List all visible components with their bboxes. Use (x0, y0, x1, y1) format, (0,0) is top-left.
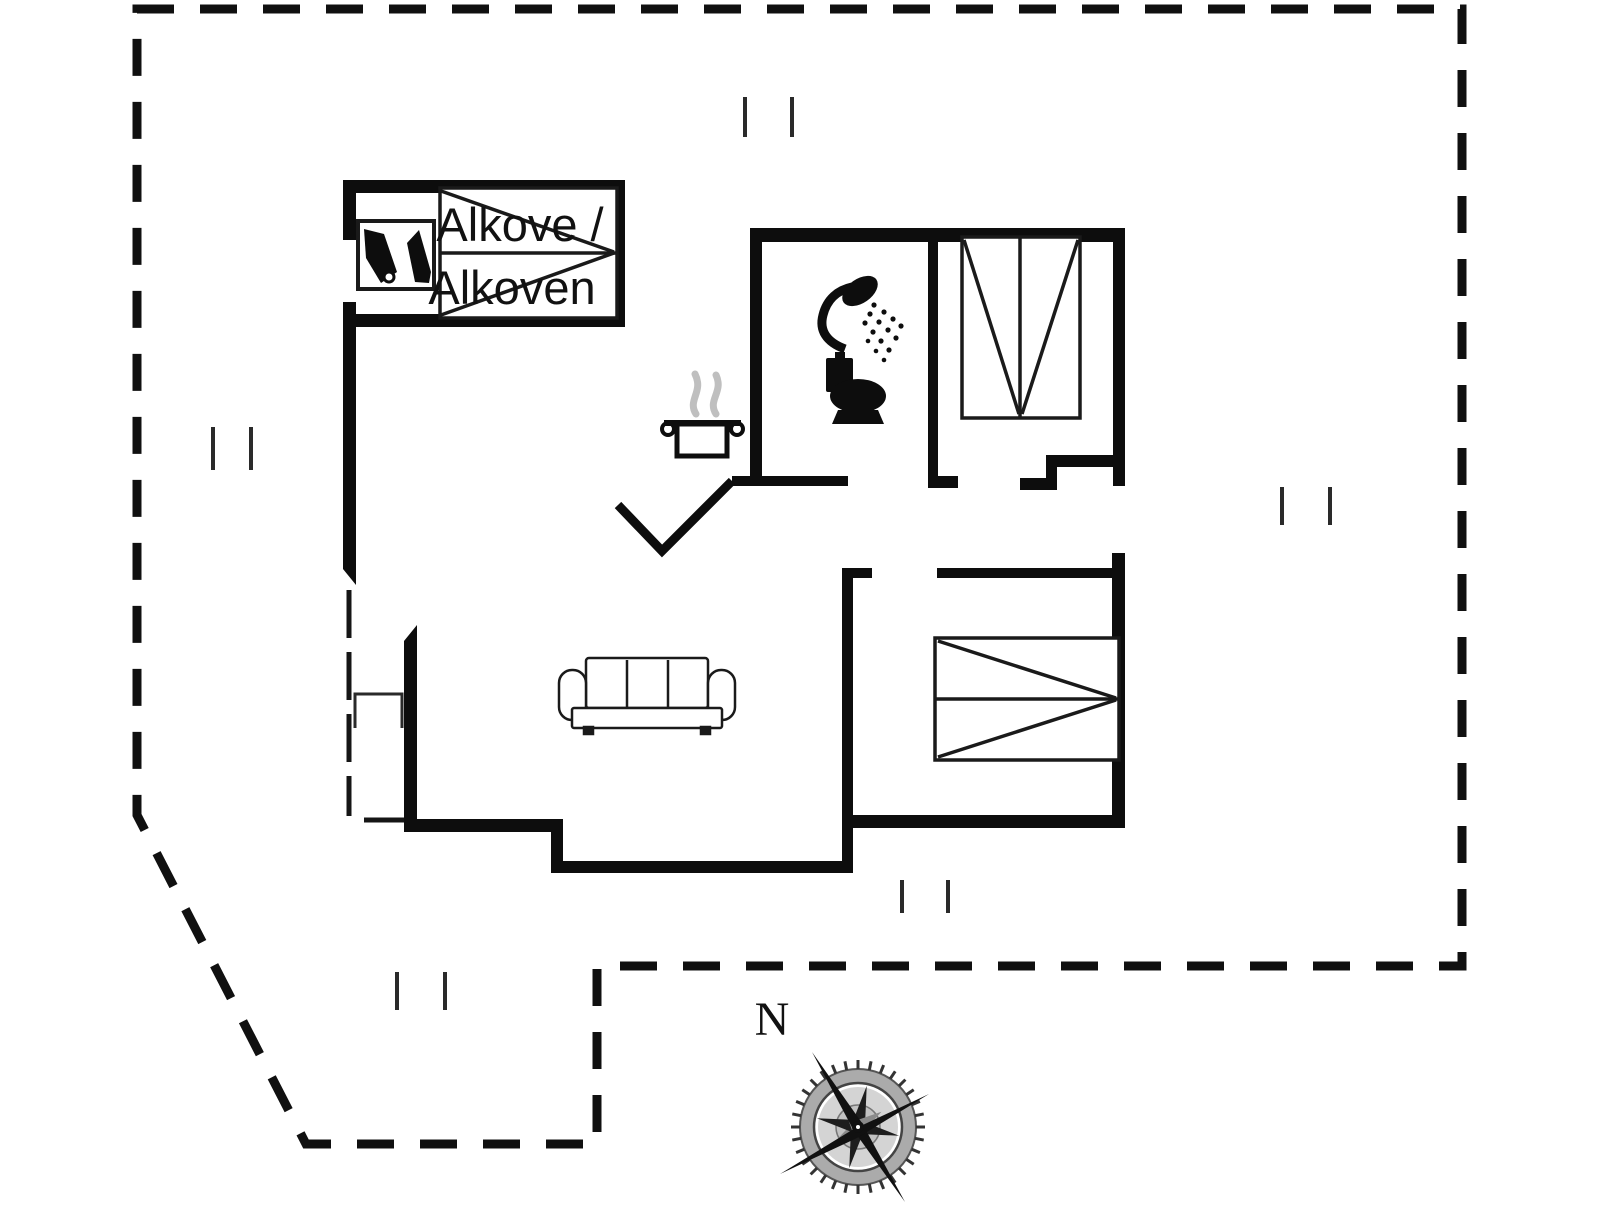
alcove-label-line1: Alkove / (436, 198, 604, 251)
cooking-pot-icon (662, 423, 743, 456)
side-table-icon (355, 694, 402, 728)
steam-icon (693, 374, 718, 414)
wardrobe-icon (358, 221, 434, 289)
north-label: N (755, 993, 790, 1046)
double-bed-vertical-icon (962, 237, 1080, 418)
property-boundary (137, 9, 1462, 1144)
toilet-icon (826, 352, 886, 424)
alcove-label-line2: Alkoven (428, 261, 595, 314)
shower-icon (822, 270, 904, 363)
floor-plan: Alkove / Alkoven (0, 0, 1606, 1205)
compass-rose-icon (780, 1052, 929, 1202)
double-bed-horizontal-icon (935, 638, 1119, 760)
sofa-icon (559, 658, 735, 734)
open-door-icon (618, 481, 732, 551)
